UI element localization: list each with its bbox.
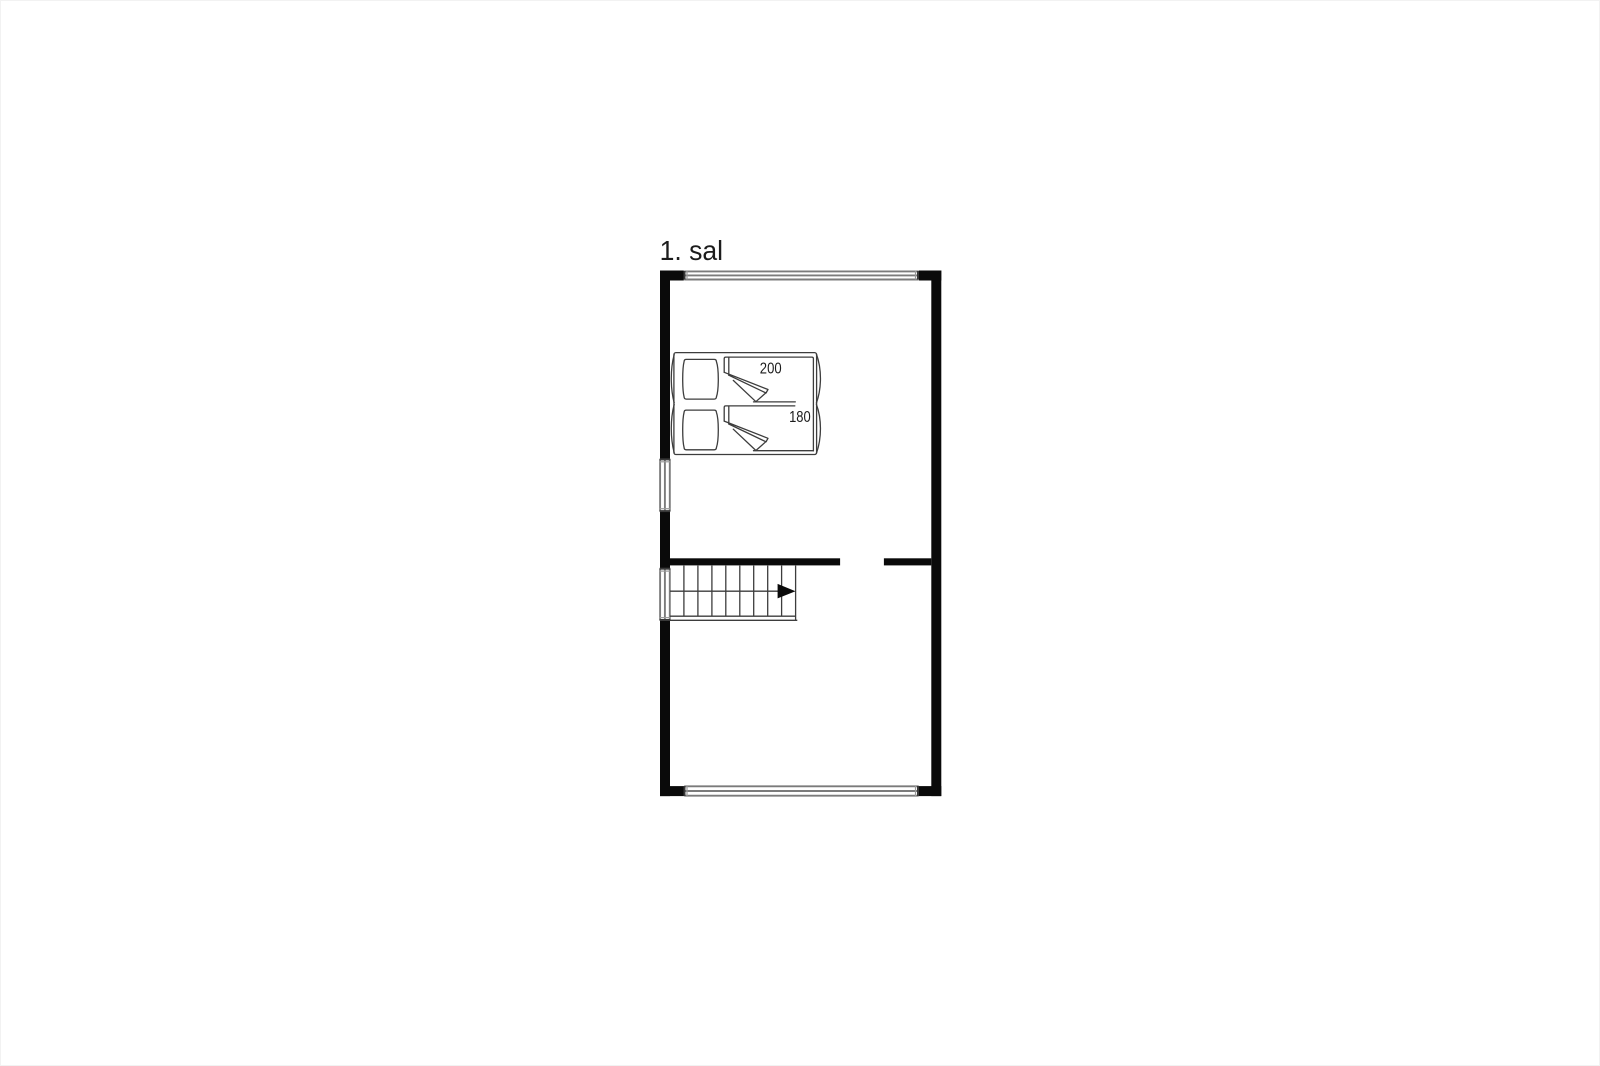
svg-text:1. sal: 1. sal — [660, 235, 724, 266]
svg-text:180: 180 — [789, 409, 811, 426]
svg-text:200: 200 — [760, 360, 782, 377]
